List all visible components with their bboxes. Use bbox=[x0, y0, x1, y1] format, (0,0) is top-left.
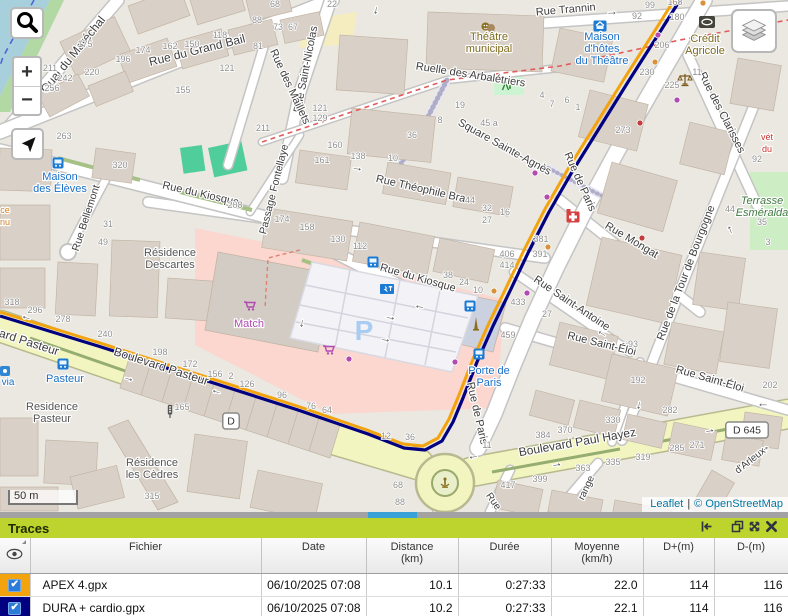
place-label: Pasteur bbox=[46, 373, 84, 385]
house-number: 211 bbox=[256, 123, 270, 133]
house-number: 150 bbox=[184, 39, 199, 49]
house-number: 172 bbox=[182, 359, 197, 369]
bus-stop-icon bbox=[368, 257, 379, 268]
house-number: 206 bbox=[654, 40, 669, 50]
place-label: RésidenceDescartes bbox=[144, 247, 196, 271]
house-number: 273 bbox=[615, 125, 630, 135]
house-number: 45 a bbox=[480, 118, 498, 128]
place-label: Résidenceles Cèdres bbox=[126, 457, 179, 481]
house-number: 278 bbox=[55, 314, 70, 324]
house-number: 175 bbox=[77, 39, 92, 49]
house-number: 32 bbox=[482, 203, 492, 213]
close-icon bbox=[765, 520, 778, 533]
traces-panel-bar: Traces bbox=[0, 518, 788, 538]
detach-icon bbox=[731, 520, 744, 533]
maximize-icon bbox=[748, 520, 761, 533]
osm-link[interactable]: © OpenStreetMap bbox=[694, 498, 783, 510]
oneway-arrow: → bbox=[702, 421, 716, 437]
zoom-out-button[interactable]: − bbox=[14, 87, 40, 115]
bus-stop-icon bbox=[53, 158, 64, 169]
house-number: 1 bbox=[575, 102, 580, 112]
poi-dot bbox=[491, 288, 497, 294]
house-number: 162 bbox=[162, 41, 177, 51]
panel-collapse-left-button[interactable] bbox=[698, 518, 715, 534]
oneway-arrow: → bbox=[412, 301, 426, 317]
house-number: 36 bbox=[405, 432, 415, 442]
table-header-row: FichierDateDistance(km)DuréeMoyenne(km/h… bbox=[0, 538, 788, 574]
house-number: 76 bbox=[306, 401, 316, 411]
zoom-control: + − bbox=[12, 56, 42, 116]
panel-detach-button[interactable] bbox=[729, 518, 746, 534]
column-header-distance[interactable]: Distance(km) bbox=[366, 538, 458, 574]
house-number: 4 bbox=[539, 90, 544, 100]
cell-average: 22.1 bbox=[551, 597, 643, 616]
oneway-arrow: → bbox=[379, 330, 393, 346]
house-number: 44 bbox=[725, 204, 735, 214]
cell-date: 06/10/2025 07:08 bbox=[261, 574, 366, 597]
column-label: Distance bbox=[369, 541, 456, 553]
house-number: 417 bbox=[500, 480, 515, 490]
house-number: 44 bbox=[465, 195, 475, 205]
map-canvas[interactable]: →→→→→→→→→→→→→→→→→→Quai du MaréchalRue du… bbox=[0, 0, 788, 512]
trace-visible-checkbox[interactable]: ✔ bbox=[8, 602, 21, 615]
house-number: 192 bbox=[630, 375, 645, 385]
house-number: 6 bbox=[564, 95, 569, 105]
house-number: 8 bbox=[437, 115, 442, 125]
column-header-duration[interactable]: Durée bbox=[458, 538, 551, 574]
oneway-arrow: → bbox=[296, 317, 312, 331]
house-number: 384 bbox=[535, 430, 550, 440]
oneway-arrow: → bbox=[370, 4, 386, 18]
cell-dminus: 116 bbox=[714, 574, 788, 597]
house-number: 35 bbox=[757, 217, 767, 227]
scale-bar: 50 m bbox=[8, 490, 78, 505]
house-number: 156 bbox=[207, 369, 222, 379]
house-number: 211 bbox=[43, 63, 57, 73]
house-number: 88 bbox=[395, 497, 405, 507]
column-label: D-(m) bbox=[717, 541, 786, 553]
house-number: 242 bbox=[57, 73, 72, 83]
map-attribution: Leaflet|© OpenStreetMap bbox=[642, 497, 788, 512]
house-number: 24 bbox=[459, 277, 469, 287]
attribution-separator: | bbox=[687, 498, 690, 510]
parking-letter: P bbox=[355, 315, 374, 346]
house-number: 31 bbox=[103, 219, 113, 229]
column-header-dminus[interactable]: D-(m) bbox=[714, 538, 788, 574]
house-number: 165 bbox=[174, 402, 189, 412]
house-number: 225 bbox=[664, 80, 679, 90]
house-number: 10 bbox=[388, 153, 398, 163]
trace-row[interactable]: ✔DURA + cardio.gpx06/10/2025 07:0810.20:… bbox=[0, 597, 788, 616]
place-label: Match bbox=[234, 318, 264, 330]
leaflet-link[interactable]: Leaflet bbox=[650, 498, 683, 510]
house-number: 370 bbox=[557, 425, 572, 435]
house-number: 208 bbox=[227, 200, 242, 210]
poi-dot bbox=[655, 32, 661, 38]
poi-dot bbox=[452, 359, 458, 365]
house-number: 11 bbox=[482, 440, 491, 450]
house-number: 67 bbox=[288, 22, 298, 32]
house-number: 256 bbox=[44, 83, 59, 93]
house-number: 320 bbox=[112, 160, 127, 170]
cell-duration: 0:27:33 bbox=[458, 574, 551, 597]
house-number: 240 bbox=[97, 329, 112, 339]
house-number: 158 bbox=[299, 222, 314, 232]
oneway-arrow: → bbox=[351, 159, 365, 175]
layers-button[interactable] bbox=[731, 9, 777, 53]
bus-stop-icon bbox=[474, 349, 485, 360]
cell-file: DURA + cardio.gpx bbox=[30, 597, 261, 616]
house-number: 2 bbox=[228, 371, 233, 381]
house-number: 174 bbox=[274, 214, 289, 224]
place-label: via bbox=[2, 377, 15, 388]
house-number: 73 bbox=[273, 22, 283, 32]
column-label: Date bbox=[264, 541, 364, 553]
cell-duration: 0:27:33 bbox=[458, 597, 551, 616]
place-label: Théâtremunicipal bbox=[466, 31, 512, 55]
house-number: 19 bbox=[455, 100, 465, 110]
column-header-average[interactable]: Moyenne(km/h) bbox=[551, 538, 643, 574]
house-number: 68 bbox=[393, 480, 403, 490]
poi-dot bbox=[652, 59, 658, 65]
oneway-arrow: → bbox=[633, 399, 649, 413]
column-header-dplus[interactable]: D+(m) bbox=[643, 538, 714, 574]
place-label: CréditAgricole bbox=[685, 33, 725, 57]
house-number: 112 bbox=[353, 241, 367, 251]
cell-average: 22.0 bbox=[551, 574, 643, 597]
house-number: 3 bbox=[765, 237, 770, 247]
visibility-eye-icon bbox=[6, 548, 23, 560]
house-number: 196 bbox=[115, 54, 130, 64]
bus-stop-icon bbox=[465, 301, 476, 312]
house-number: 129 bbox=[312, 113, 327, 123]
column-label: Durée bbox=[461, 541, 549, 553]
search-button[interactable] bbox=[10, 7, 44, 39]
column-header-date[interactable]: Date bbox=[261, 538, 366, 574]
cell-file: APEX 4.gpx bbox=[30, 574, 261, 597]
house-number: 64 bbox=[322, 405, 332, 415]
house-number: 220 bbox=[84, 67, 99, 77]
house-number: 271 bbox=[689, 440, 704, 450]
house-number: 7 bbox=[549, 99, 554, 109]
house-number: 92 bbox=[752, 154, 762, 164]
house-number: 49 bbox=[98, 237, 108, 247]
house-number: 174 bbox=[135, 45, 150, 55]
house-number: 168 bbox=[667, 0, 682, 7]
cell-dplus: 114 bbox=[643, 597, 714, 616]
cell-dplus: 114 bbox=[643, 574, 714, 597]
oneway-arrow: → bbox=[757, 400, 769, 414]
oneway-arrow: → bbox=[605, 4, 618, 19]
ev-charging-icon bbox=[380, 284, 394, 294]
house-number: 319 bbox=[635, 452, 650, 462]
house-number: 198 bbox=[152, 347, 167, 357]
trace-visible-checkbox[interactable]: ✔ bbox=[8, 579, 21, 592]
house-number: 92 bbox=[632, 11, 642, 21]
house-number: 230 bbox=[639, 67, 654, 77]
cell-distance: 10.1 bbox=[366, 574, 458, 597]
house-number: 381 bbox=[533, 234, 548, 244]
house-number: 121 bbox=[312, 103, 327, 113]
house-number: 16 bbox=[500, 207, 510, 217]
trace-color-swatch: ✔ bbox=[0, 574, 30, 597]
house-number: 155 bbox=[175, 85, 190, 95]
oneway-arrow: → bbox=[384, 308, 398, 324]
house-number: 399 bbox=[532, 474, 547, 484]
sort-indicator bbox=[22, 540, 26, 544]
house-number: 121 bbox=[219, 63, 234, 73]
cell-dminus: 116 bbox=[714, 597, 788, 616]
house-number: 88 bbox=[252, 15, 262, 25]
oneway-arrow: → bbox=[467, 451, 481, 467]
poi-dot bbox=[637, 120, 643, 126]
place-label: ResidencePasteur bbox=[26, 401, 78, 425]
house-number: 36 bbox=[407, 130, 417, 140]
house-number: 93 bbox=[628, 339, 638, 349]
collapse-left-icon bbox=[700, 520, 713, 533]
house-number: 318 bbox=[4, 297, 19, 307]
house-number: 414 bbox=[499, 260, 514, 270]
house-number: 282 bbox=[662, 405, 677, 415]
cell-date: 06/10/2025 07:08 bbox=[261, 597, 366, 616]
house-number: 27 bbox=[482, 215, 492, 225]
road-shield-label: D bbox=[227, 416, 235, 428]
poi-dot bbox=[346, 356, 352, 362]
panel-toolbar bbox=[698, 518, 780, 538]
house-number: 315 bbox=[144, 491, 159, 501]
house-number: 335 bbox=[605, 457, 620, 467]
house-number: 406 bbox=[499, 249, 514, 259]
house-number: 22 bbox=[327, 0, 337, 9]
column-unit: (km) bbox=[369, 553, 456, 565]
layers-icon bbox=[739, 16, 769, 46]
house-number: 180 bbox=[669, 12, 684, 22]
house-number: 138 bbox=[350, 151, 365, 161]
poi-dot bbox=[544, 194, 550, 200]
house-number: 10 bbox=[473, 285, 483, 295]
poi-dot bbox=[674, 97, 680, 103]
column-header-file[interactable]: Fichier bbox=[30, 538, 261, 574]
search-icon bbox=[14, 10, 40, 36]
app-window: →→→→→→→→→→→→→→→→→→Quai du MaréchalRue du… bbox=[0, 0, 788, 616]
house-number: 363 bbox=[575, 463, 590, 473]
house-number: 81 bbox=[253, 41, 263, 51]
house-number: 263 bbox=[56, 131, 71, 141]
zoom-in-button[interactable]: + bbox=[14, 58, 40, 87]
column-label: Moyenne bbox=[554, 541, 641, 553]
house-number: 12 bbox=[381, 431, 391, 441]
house-number: 202 bbox=[762, 380, 777, 390]
oneway-arrow: → bbox=[549, 455, 563, 471]
column-label: Fichier bbox=[33, 541, 259, 553]
cell-distance: 10.2 bbox=[366, 597, 458, 616]
road-shield-label: D 645 bbox=[733, 425, 761, 437]
house-number: 433 bbox=[510, 297, 525, 307]
column-unit: (km/h) bbox=[554, 553, 641, 565]
panel-title: Traces bbox=[8, 521, 698, 536]
traces-table: FichierDateDistance(km)DuréeMoyenne(km/h… bbox=[0, 538, 788, 616]
house-number: 38 bbox=[443, 270, 453, 280]
house-number: 459 bbox=[500, 330, 515, 340]
map-viewport[interactable]: →→→→→→→→→→→→→→→→→→Quai du MaréchalRue du… bbox=[0, 0, 788, 512]
locate-arrow-icon bbox=[17, 133, 39, 155]
column-label: D+(m) bbox=[646, 541, 712, 553]
panel-maximize-button[interactable] bbox=[746, 518, 763, 534]
house-number: 11 bbox=[692, 67, 701, 77]
bus-stop-icon bbox=[58, 359, 69, 370]
house-number: 99 bbox=[645, 0, 655, 10]
traces-panel: Traces FichierDateDistance(km)DuréeMoyen… bbox=[0, 518, 788, 616]
poi-icon bbox=[0, 366, 10, 376]
locate-button[interactable] bbox=[11, 128, 44, 160]
credit-agricole-icon bbox=[699, 16, 715, 28]
column-header-visibility[interactable] bbox=[0, 538, 30, 574]
house-number: 126 bbox=[239, 379, 254, 389]
guesthouse-icon bbox=[594, 21, 607, 32]
house-number: 130 bbox=[330, 234, 345, 244]
trace-color-swatch: ✔ bbox=[0, 597, 30, 616]
house-number: 68 bbox=[270, 0, 280, 9]
poi-dot bbox=[524, 290, 530, 296]
house-number: 27 bbox=[542, 309, 552, 319]
house-number: 96 bbox=[277, 390, 287, 400]
trace-row[interactable]: ✔APEX 4.gpx06/10/2025 07:0810.10:27:3322… bbox=[0, 574, 788, 597]
house-number: 285 bbox=[669, 443, 684, 453]
house-number: 161 bbox=[314, 155, 329, 165]
house-number: 391 bbox=[532, 249, 547, 259]
house-number: 160 bbox=[327, 140, 342, 150]
house-number: 296 bbox=[27, 305, 42, 315]
place-label: TerrasseEsméralda bbox=[736, 195, 788, 219]
house-number: 118 bbox=[213, 30, 227, 40]
panel-close-button[interactable] bbox=[763, 518, 780, 534]
poi-dot bbox=[700, 0, 706, 6]
house-number: 330 bbox=[605, 415, 620, 425]
